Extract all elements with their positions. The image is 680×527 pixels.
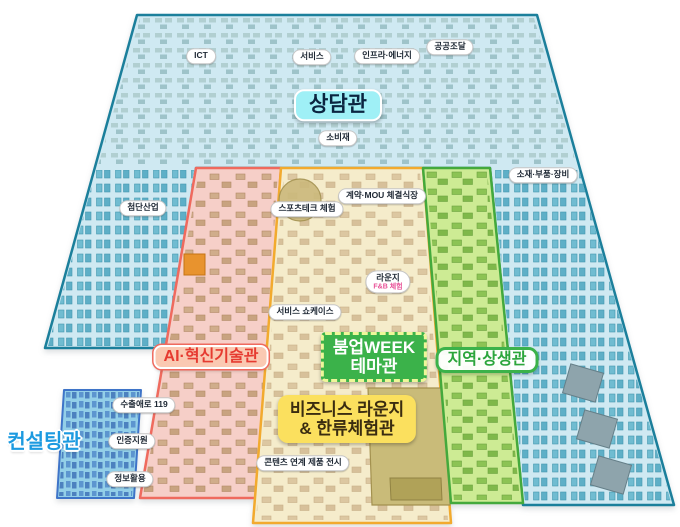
hall-label-biz-line2: & 한류체험관 <box>299 419 394 438</box>
pill-lounge-sub: F&B 체험 <box>373 283 402 291</box>
hall-label-boomup-line1: 붐업WEEK <box>333 338 415 357</box>
pill-lounge: 라운지 F&B 체험 <box>365 270 410 293</box>
hall-label-sangdam: 상담관 <box>294 89 382 121</box>
exhibition-floorplan: ICT 서비스 인프라·에너지 공공조달 소비재 첨단산업 소재·부품·장비 스… <box>0 0 680 527</box>
hall-label-boomup-line2: 테마관 <box>351 357 398 376</box>
pill-showcase: 서비스 쇼케이스 <box>268 304 341 320</box>
pill-consumer: 소비재 <box>318 130 357 146</box>
pill-ict: ICT <box>186 48 216 64</box>
pill-infra: 인프라·에너지 <box>354 48 420 64</box>
hall-label-consulting: 컨설팅관 <box>7 431 81 453</box>
pill-advanced: 첨단산업 <box>119 200 166 216</box>
pill-materials: 소재·부품·장비 <box>509 167 578 183</box>
pill-info: 정보활용 <box>106 471 153 487</box>
hall-label-biz-line1: 비즈니스 라운지 <box>290 400 404 419</box>
pill-contents: 콘텐츠 연계 제품 전시 <box>256 455 349 471</box>
floorplan-zones <box>0 0 680 527</box>
hall-label-boomup: 붐업WEEK 테마관 <box>321 332 427 382</box>
hall-label-jiyeok: 지역·상생관 <box>436 347 539 373</box>
hall-label-ai: AI·혁신기술관 <box>154 345 269 369</box>
hall-label-biz: 비즈니스 라운지 & 한류체험관 <box>278 395 416 443</box>
pill-sportstech: 스포츠테크 체험 <box>270 201 343 217</box>
pill-cert: 인증지원 <box>108 433 155 449</box>
pill-lounge-title: 라운지 <box>376 272 399 282</box>
pill-export119: 수출애로 119 <box>112 397 175 413</box>
korean-wave-stage-front <box>390 478 442 500</box>
pill-service: 서비스 <box>292 49 331 65</box>
pill-procurement: 공공조달 <box>426 39 473 55</box>
ai-orange-booth <box>184 254 205 275</box>
pill-mou: 계약·MOU 체결식장 <box>338 188 426 204</box>
